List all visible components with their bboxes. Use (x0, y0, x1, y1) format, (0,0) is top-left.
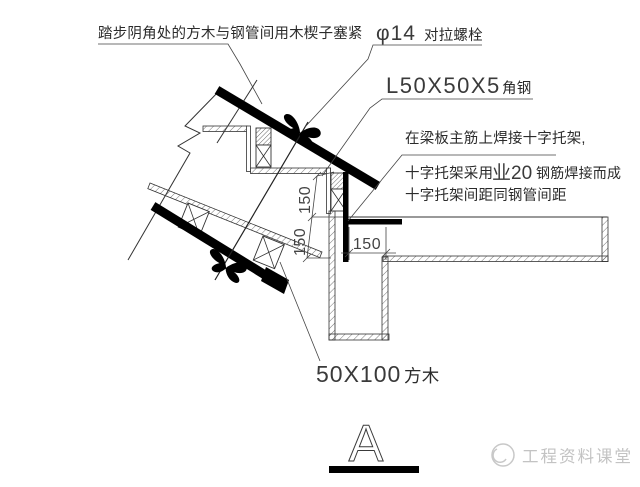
note-angle-steel-size: L50X50X5 (386, 73, 501, 98)
dim-rise-lower: 150 (292, 228, 309, 256)
note-tie-bolt-size: φ14 (376, 22, 416, 45)
note-angle-steel-name: 角钢 (502, 80, 531, 97)
note-tie-bolt-name: 对拉螺栓 (424, 27, 483, 44)
dim-run: 150 (353, 236, 381, 253)
note-bracket-line2-post: 钢筋焊接而成 (536, 165, 621, 181)
detail-mark-underline (329, 466, 419, 473)
watermark-logo-icon (492, 444, 514, 466)
slab-beam-formwork (329, 211, 608, 340)
construction-detail-drawing: 150 150 150 踏步阴角处的方木与钢管间用木楔子塞紧 φ14 对拉螺栓 … (0, 0, 640, 487)
note-bracket-line2-rebar: 业20 (492, 162, 532, 184)
note-bracket-line3: 十字托架间距同钢管间距 (405, 187, 567, 204)
note-timber-name: 方木 (404, 366, 439, 386)
stair-formwork-detail-svg: 150 150 150 踏步阴角处的方木与钢管间用木楔子塞紧 φ14 对拉螺栓 … (0, 0, 640, 487)
note-bracket-line2-pre: 十字托架采用 (405, 165, 493, 182)
detail-mark: A (349, 415, 384, 473)
riser-timber-1 (256, 128, 271, 167)
dim-rise-upper: 150 (297, 186, 314, 214)
watermark-text: 工程资料课堂 (522, 447, 633, 466)
note-bracket-line1: 在梁板主筋上焊接十字托架, (405, 129, 586, 147)
note-wedge: 踏步阴角处的方木与钢管间用木楔子塞紧 (98, 24, 363, 42)
note-timber-size: 50X100 (316, 361, 401, 387)
